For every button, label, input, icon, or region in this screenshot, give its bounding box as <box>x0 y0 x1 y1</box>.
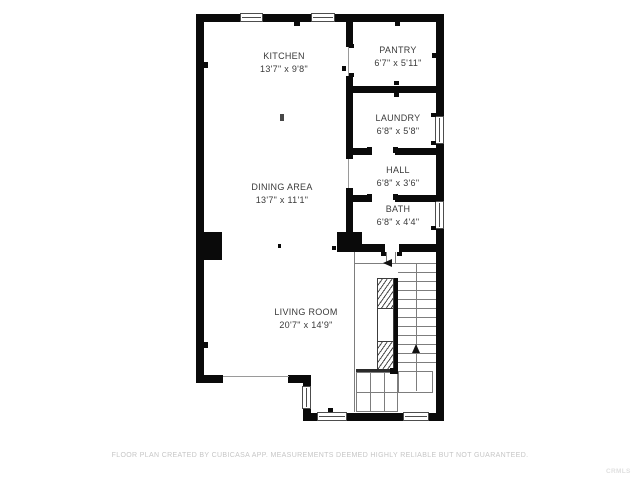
fixture-mark <box>280 114 284 121</box>
wall-opening-line <box>223 376 289 377</box>
stair-tread <box>398 281 436 282</box>
room-name: DINING AREA <box>222 181 342 194</box>
interior-wall-bath-bottom-a <box>346 244 385 252</box>
stair-landing-grid-line <box>356 392 398 393</box>
mls-watermark: CRMLS <box>606 468 631 475</box>
stair-tread <box>398 299 436 300</box>
room-label-hall: HALL 6'8" x 3'6" <box>338 164 458 190</box>
stair-walkline-stub <box>395 252 396 263</box>
room-label-kitchen: KITCHEN 13'7" x 9'8" <box>224 50 344 76</box>
door-tick <box>328 408 333 412</box>
door-tick <box>204 62 208 68</box>
stair-railing-panel <box>377 308 394 342</box>
room-label-living-room: LIVING ROOM 20'7" x 14'9" <box>246 306 366 332</box>
room-name: LIVING ROOM <box>246 306 366 319</box>
window <box>311 13 335 22</box>
left-wall-pillar <box>196 232 222 260</box>
door-tick <box>394 81 399 85</box>
stair-tread <box>398 308 436 309</box>
room-label-laundry: LAUNDRY 6'8" x 5'8" <box>338 112 458 138</box>
door-tick <box>346 155 353 159</box>
stair-newel-post <box>390 368 398 374</box>
stair-tread <box>398 353 436 354</box>
footer-disclaimer: FLOOR PLAN CREATED BY CUBICASA APP. MEAS… <box>0 452 640 459</box>
stair-railing-hatch-upper <box>377 278 394 309</box>
interior-wall-bath-bottom-b <box>399 244 444 252</box>
exterior-wall-bottom-left-a <box>196 375 223 383</box>
stair-tread <box>398 326 436 327</box>
door-tick <box>349 73 354 77</box>
window <box>317 412 347 421</box>
stair-area-boundary-line <box>354 252 355 412</box>
door-tick <box>394 93 399 97</box>
stair-tread <box>398 335 436 336</box>
door-tick <box>204 342 208 348</box>
door-tick <box>367 147 372 153</box>
room-name: KITCHEN <box>224 50 344 63</box>
door-tick <box>431 141 436 145</box>
door-tick <box>431 198 436 202</box>
room-label-pantry: PANTRY 6'7" x 5'11" <box>338 44 458 70</box>
door-tick <box>367 194 372 200</box>
stair-landing-grid-right <box>398 371 433 393</box>
room-dimensions: 6'8" x 5'8" <box>338 125 458 138</box>
floor-plan: KITCHEN 13'7" x 9'8" PANTRY 6'7" x 5'11"… <box>0 0 640 480</box>
door-tick <box>393 147 398 153</box>
stair-tread <box>398 272 436 273</box>
room-dimensions: 6'8" x 3'6" <box>338 177 458 190</box>
interior-wall-laundry-bottom-b <box>395 148 444 155</box>
exterior-wall-left <box>196 14 204 383</box>
door-tick <box>294 22 300 26</box>
room-dimensions: 6'8" x 4'4" <box>338 216 458 229</box>
room-name: LAUNDRY <box>338 112 458 125</box>
window <box>403 412 429 421</box>
interior-wall-pantry-bottom <box>346 86 444 93</box>
stair-tread <box>398 290 436 291</box>
room-name: HALL <box>338 164 458 177</box>
window <box>240 13 263 22</box>
stair-tread <box>398 317 436 318</box>
window <box>302 386 311 409</box>
room-label-bath: BATH 6'8" x 4'4" <box>338 203 458 229</box>
door-tick <box>278 244 281 248</box>
room-name: PANTRY <box>338 44 458 57</box>
room-dimensions: 13'7" x 11'1" <box>222 194 342 207</box>
stair-direction-left-arrow-icon <box>383 259 392 267</box>
door-tick <box>397 252 402 256</box>
room-name: BATH <box>338 203 458 216</box>
room-label-dining-area: DINING AREA 13'7" x 11'1" <box>222 181 342 207</box>
door-tick <box>395 22 400 26</box>
stair-tread <box>398 362 436 363</box>
room-dimensions: 13'7" x 9'8" <box>224 63 344 76</box>
stair-railing-hatch-lower <box>377 341 394 371</box>
room-dimensions: 6'7" x 5'11" <box>338 57 458 70</box>
room-dimensions: 20'7" x 14'9" <box>246 319 366 332</box>
interior-wall-pantry-left-upper <box>346 14 353 47</box>
door-tick <box>332 246 336 250</box>
stair-direction-up-arrow-icon <box>412 344 420 353</box>
stair-walkline-horizontal <box>390 263 417 264</box>
door-tick <box>393 194 398 200</box>
